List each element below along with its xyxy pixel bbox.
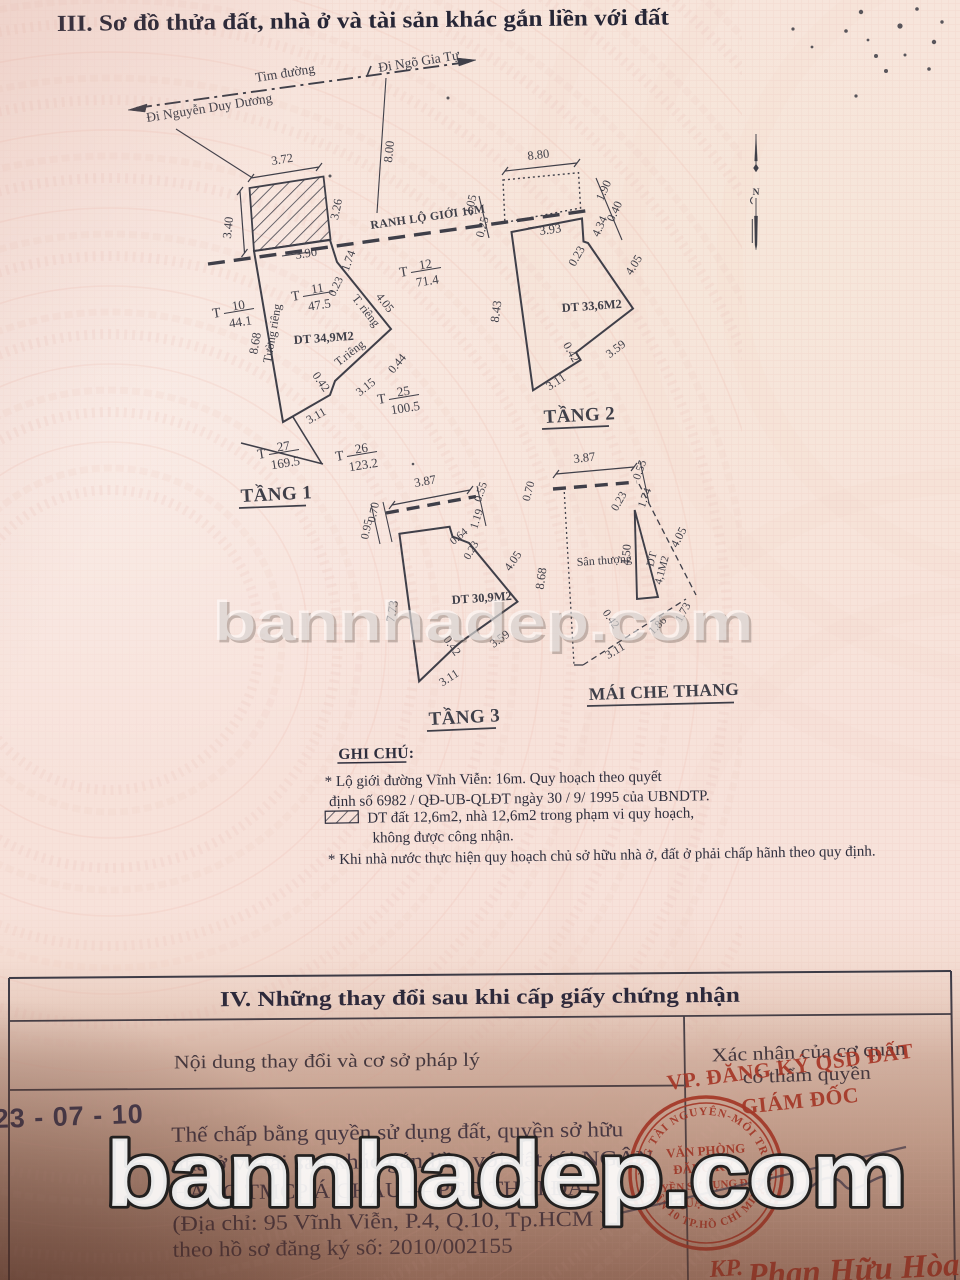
svg-text:bannhadep.com: bannhadep.com xyxy=(105,1122,905,1226)
svg-text:bannhadep.com: bannhadep.com xyxy=(212,589,752,652)
